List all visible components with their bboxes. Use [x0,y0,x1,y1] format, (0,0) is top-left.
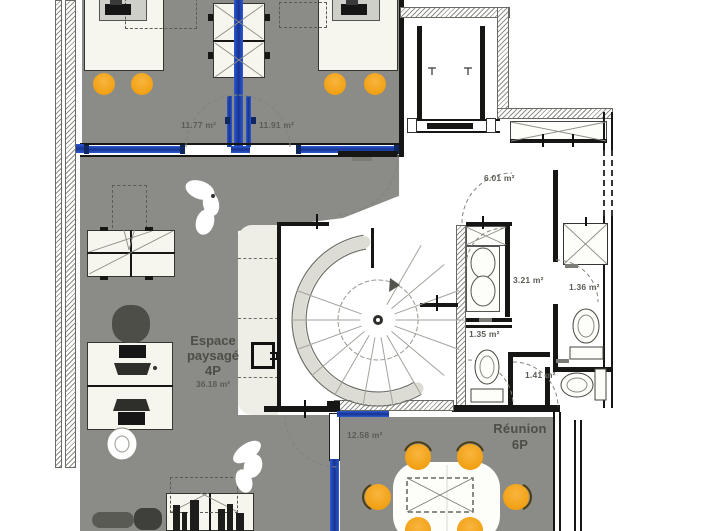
open-space-capacity: 4P [168,363,258,378]
wall-sanitary-right [505,225,510,317]
wall-wc-mid-h [510,352,550,357]
shelf-bar [466,325,512,328]
glass-front-left [86,146,183,153]
stair-wall-top [277,222,329,226]
elevator-jamb [486,118,496,133]
dark-chair [134,508,162,530]
open-space-area: 36.18 m² [168,379,258,389]
glass-fitting [225,117,230,124]
stair-wall-left [277,225,281,412]
table-tab [265,14,270,21]
office-chair [364,73,386,95]
door-leaf-corridor [338,151,398,155]
table-cluster-div-h [87,252,175,254]
meeting-chair [503,484,529,510]
toilet [471,350,503,402]
office-chair [93,73,115,95]
wc-left-area-label: 1.35 m² [469,330,500,340]
wall-hatch-right-horiz [497,108,613,119]
wc-top-area-label: 1.36 m² [569,283,600,293]
dim-tag [479,318,492,322]
bottom-desks-outline [170,477,238,513]
occupied-chair [112,305,150,343]
meeting-room-name: Réunion [480,422,560,437]
terrace-wall [574,420,576,531]
elevator-wall-left [417,26,422,120]
facade-line [611,112,613,150]
elevator-jamb [407,118,417,133]
window-left-wall [76,144,84,153]
dim-tag [352,157,372,161]
workstation-divider [87,385,173,387]
table-tab [208,14,213,21]
annex-divider [238,318,278,319]
meeting-chair [405,444,431,470]
floor-plan: 11.77 m² 11.91 m² 6.01 m² 3.21 m² 1.36 m… [0,0,708,531]
stair-box [281,225,452,412]
wc-right-area-label: 1.41 m² [525,371,556,381]
wall-hatch-sanitary [456,225,466,406]
wall-offices-right [399,0,404,157]
table-tab [208,52,213,59]
stair-wall-bottom-hatch [334,400,454,411]
meeting-room-capacity: 6P [480,438,560,453]
glass-meeting-left [337,411,389,417]
office-chair [131,73,153,95]
table-tab [100,227,108,231]
facade-dashed [603,150,613,216]
facade-line [603,112,605,150]
glass-corridor-bottom [330,459,339,531]
glass-end [296,145,301,154]
annex-divider [238,258,278,259]
elevator-door-panel [427,123,473,129]
elevator-marks [428,68,472,75]
table-tab [145,276,153,280]
wall-hatch-top [400,7,510,18]
wall-553-upper [553,170,558,262]
sink-unit [466,246,500,312]
office-left-area-label: 11.77 m² [181,121,216,131]
duct-shaft [563,223,608,265]
toilet [561,369,606,400]
office-right-printer-table [332,0,380,21]
office-right-area-label: 11.91 m² [259,121,294,131]
stair-inner-wall-h [420,303,458,307]
exterior-wall-left-inner [65,0,76,468]
wall-wc-right-top [553,367,613,372]
vanity-counter [466,226,506,246]
hall-area-label: 6.01 m² [484,174,515,184]
glass-partition-offices [234,0,243,147]
dim-tag [565,264,578,268]
glass-fitting [251,117,256,124]
meeting-chair [365,484,391,510]
toilet [570,309,603,359]
open-space-label: Espace paysagé 4P 36.18 m² [168,333,258,389]
open-space-name-line2: paysagé [168,348,258,363]
corridor-area-label: 12.58 m² [347,431,383,441]
coat-cabinet-rail [510,139,607,143]
stair-inner-wall-v [371,228,374,268]
glass-end [84,145,89,154]
stair-wall-bottom [264,406,334,412]
facade-line [611,216,613,408]
office-right-storage-outline [279,2,327,28]
sanitary-area-label: 3.21 m² [513,276,544,286]
wall-corridor-bottom [329,413,340,461]
table-tab [100,276,108,280]
wall-hatch-right-vert [497,7,509,111]
corridor-wall-top [80,143,400,145]
table-tab [145,227,153,231]
exterior-wall-left-outer [55,0,62,468]
wall-wc-mid-v [508,352,513,412]
dim-tag [556,359,569,363]
office-left-storage-outline [125,0,197,29]
office-chair [324,73,346,95]
glass-end [180,145,185,154]
open-space-name-line1: Espace [168,333,258,348]
equipment-blob [92,512,134,528]
glass-front-mid [231,146,250,153]
elevator-wall-right [480,26,485,120]
table-tab [265,52,270,59]
terrace-wall [580,420,582,531]
